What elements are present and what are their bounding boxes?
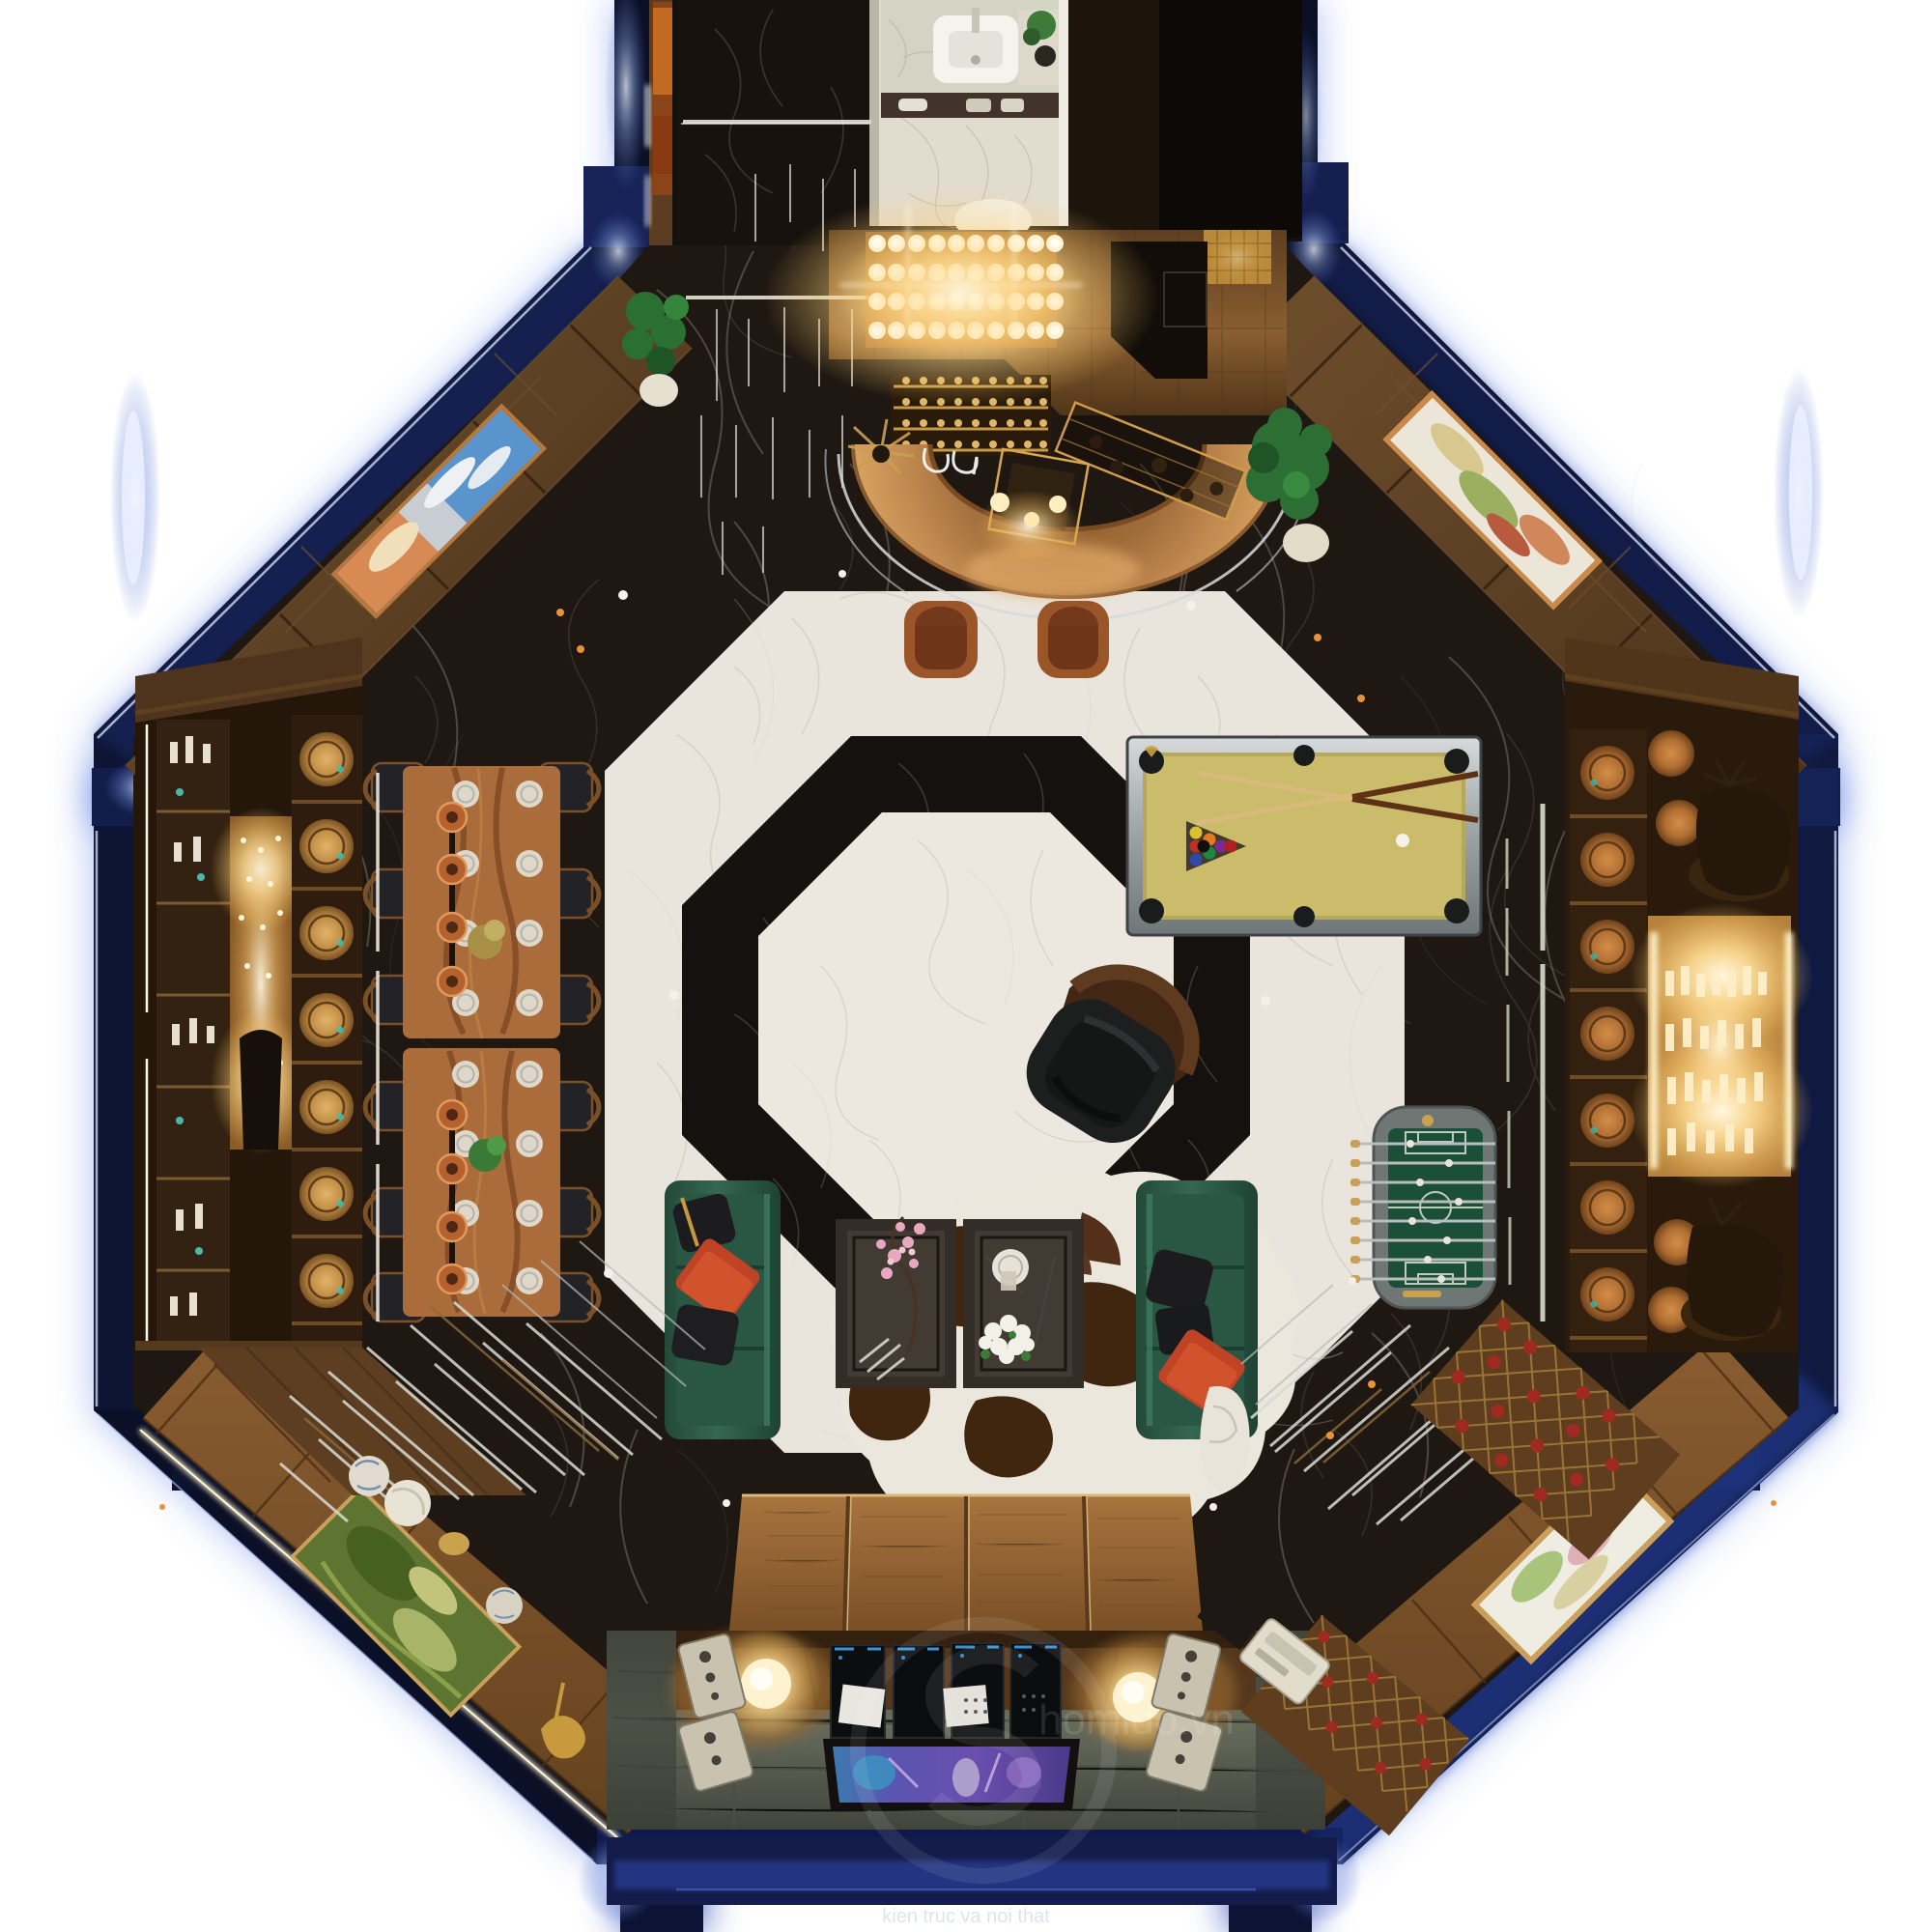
svg-text:homido.vn: homido.vn [1038, 1696, 1235, 1744]
svg-text:kien truc va noi that: kien truc va noi that [882, 1906, 1050, 1927]
